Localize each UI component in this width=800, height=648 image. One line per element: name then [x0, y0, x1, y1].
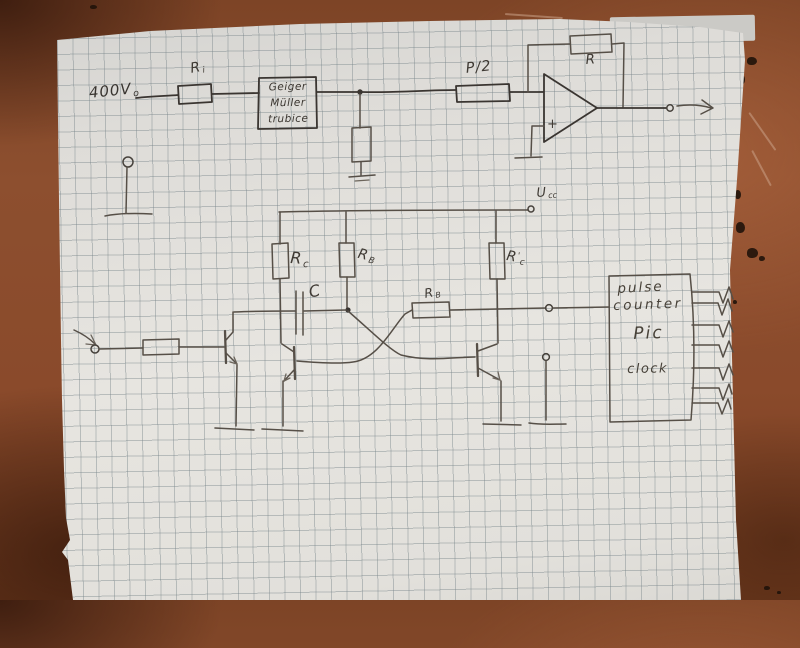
ucc-label: Ucc — [536, 185, 557, 202]
debris-speck — [747, 248, 758, 258]
opamp-plus-sign: + — [547, 117, 559, 132]
rc-right-label: R'c — [505, 248, 527, 268]
debris-speck — [90, 5, 97, 9]
r1-label: Ri — [189, 59, 206, 79]
debris-speck — [733, 300, 737, 304]
debris-speck — [747, 57, 757, 65]
rb-horizontal-label: RB — [423, 283, 442, 302]
debris-speck — [764, 586, 770, 590]
counter-line-pic: Pic — [633, 323, 664, 344]
gm-tube-label: Geiger Müller trubice — [261, 80, 316, 128]
table-scratch — [505, 13, 563, 19]
debris-speck — [777, 591, 781, 594]
debris-speck — [736, 222, 745, 233]
counter-line-clock: clock — [627, 361, 668, 377]
rc-left-label: Rc — [290, 248, 310, 270]
counter-line-counter: counter — [613, 296, 683, 314]
feedback-r-label: R — [585, 51, 596, 68]
p2-label: P/2 — [465, 58, 492, 77]
table-scratch — [748, 112, 776, 151]
table-scratch — [751, 150, 772, 186]
debris-speck — [759, 256, 765, 261]
photo-hand-drawn-schematic: { "colors": { "table_brown": "#8a4a2c", … — [0, 0, 800, 600]
counter-line-pulse: pulse — [617, 279, 664, 297]
